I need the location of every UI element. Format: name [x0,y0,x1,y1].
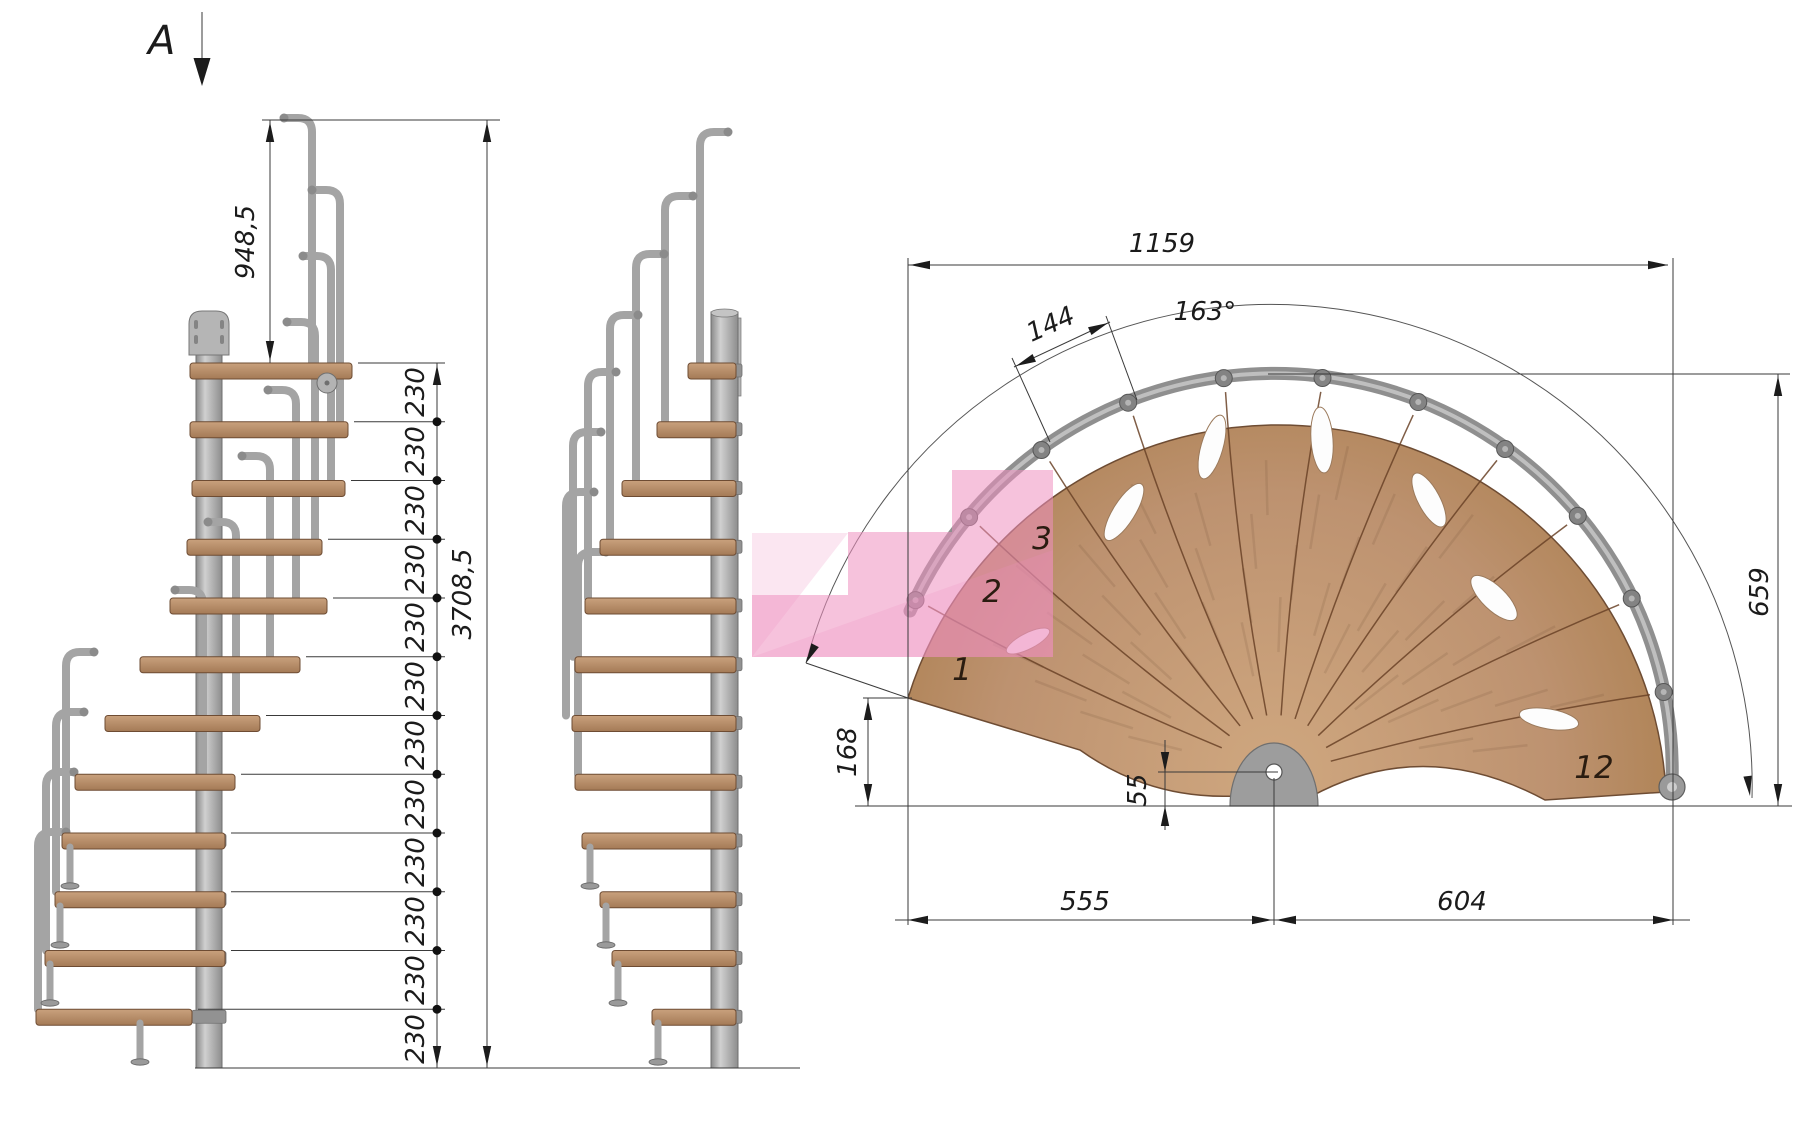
rail-joint-pin [1575,513,1581,519]
handrail-post [636,254,664,481]
dimension-node [433,770,442,779]
dimension-node [433,535,442,544]
auxiliary-elevation-view [566,128,742,1069]
dimension-arrow [483,1046,491,1066]
rail-joint-pin [1661,689,1667,695]
rail-clamp [90,648,99,657]
dimension-node [433,476,442,485]
dim-riser: 230 [401,426,431,476]
rail-clamp [724,128,733,137]
dim-riser: 230 [401,1014,431,1064]
dimension-arrow [864,784,872,804]
tread [582,833,736,849]
dim-right-half: 604 [1437,887,1487,917]
dimension-node [433,417,442,426]
tread [688,363,736,379]
foot-plate [61,883,79,889]
rail-joint-pin [1125,400,1131,406]
dim-riser: 230 [401,661,431,711]
tread [622,481,736,497]
dim-riser: 230 [401,602,431,652]
dimension-node [433,1005,442,1014]
rail-end-cap-core [1667,782,1677,792]
dimension-node [433,829,442,838]
tread [657,422,736,438]
tread [140,657,300,673]
rail-joint-pin [1502,446,1508,452]
tread [170,598,327,614]
rail-clamp [238,452,247,461]
highlight-step-1 [752,595,1053,657]
dimension-arrow [266,122,274,142]
tread [652,1009,736,1025]
dim-center-offset: 55 [1123,773,1153,806]
rail-clamp [280,114,289,123]
dimension-line [1012,358,1050,442]
dim-riser: 230 [401,896,431,946]
tread [36,1009,192,1025]
dimension-arrow [864,700,872,720]
tread [575,774,736,790]
dim-left-half: 555 [1060,887,1110,917]
handrail-post [665,196,693,422]
bracket-slot [194,320,198,329]
dimension-line [806,663,908,698]
highlight-step-2 [848,532,1053,595]
bracket-slot [220,335,224,344]
dimension-node [433,887,442,896]
rail-clamp [612,368,621,377]
bracket-slot [194,335,198,344]
tread [585,598,736,614]
rail-clamp [80,708,89,717]
dim-riser: 230 [401,367,431,417]
tread [187,539,322,555]
dimension-arrow [1276,916,1296,924]
section-label: A [145,18,175,64]
rail-clamp [264,386,273,395]
dimension-arrow [266,341,274,361]
rail-clamp [283,318,292,327]
tread [600,892,736,908]
tread [55,892,225,908]
dimension-node [433,652,442,661]
tread [612,951,736,967]
dim-riser: 230 [401,837,431,887]
dimension-arrow [1774,784,1782,804]
tread [45,951,225,967]
tread [192,481,345,497]
dim-riser: 230 [401,955,431,1005]
rail-clamp [634,311,643,320]
rail-clamp [171,586,180,595]
dimension-node [433,711,442,720]
dim-riser: 230 [401,720,431,770]
rail-joint-pin [1038,447,1044,453]
tread [62,833,225,849]
wood-grain [1266,460,1267,515]
dimension-arrow [1161,806,1169,826]
section-cut-highlight [752,470,1053,657]
dimension-arrow [910,261,930,269]
dim-total-height: 3708,5 [448,549,478,640]
rail-clamp [204,518,213,527]
foot-plate [609,1000,627,1006]
dim-entry-depth: 168 [833,727,863,777]
foot-plate [131,1059,149,1065]
foot-plate [649,1059,667,1065]
dimension-arrow [1648,261,1668,269]
tread [190,422,348,438]
dim-right-depth: 659 [1745,567,1775,617]
dimension-arrow [908,916,928,924]
dimension-arrow [433,1046,441,1066]
rail-clamp [597,428,606,437]
dim-overall-width: 1159 [1129,229,1195,259]
rail-joint-pin [1629,596,1635,602]
wall-bracket [189,311,229,355]
tread-number-12: 12 [1574,750,1613,786]
tread-number-1: 1 [952,652,972,688]
rail-joint-pin [1415,399,1421,405]
column-cap [711,309,738,317]
handrail-post [66,652,94,833]
bracket-slot [220,320,224,329]
rail-clamp [689,192,698,201]
staircase-technical-drawing: A 948,5 3708,5 230 230 230 230 230 230 2… [0,0,1800,1122]
dim-sweep-angle: 163° [1174,297,1237,327]
tread [75,774,235,790]
dim-riser: 230 [401,544,431,594]
tread [600,539,736,555]
rail-joint-pin [1221,375,1227,381]
dim-tread-width: 144 [1022,301,1080,349]
dimension-arrow [1653,916,1673,924]
dimension-arrow [194,58,211,86]
dimension-arrow [1252,916,1272,924]
tread-collar [192,1010,226,1023]
rail-clamp [299,252,308,261]
foot-plate [51,942,69,948]
tread [105,716,260,732]
rail-joint-pin [1320,375,1326,381]
side-elevation-view [36,114,352,1069]
dimension-node [433,946,442,955]
rail-clamp [308,186,317,195]
dimension-arrow [433,365,441,385]
dimension-arrow [1774,376,1782,396]
foot-plate [597,942,615,948]
dim-riser: 230 [401,485,431,535]
tread [575,657,736,673]
dim-top-riser: 948,5 [231,205,261,279]
dimension-node [433,594,442,603]
tread [572,716,736,732]
dimension-arrow [1088,319,1110,335]
rail-clamp [660,250,669,259]
rail-clamp [590,488,599,497]
foot-plate [41,1000,59,1006]
tread-number-2: 2 [982,574,1002,610]
wall-anchor-bolt [325,381,330,386]
dim-riser: 230 [401,779,431,829]
foot-plate [581,883,599,889]
tread-number-3: 3 [1032,521,1052,557]
dimension-arrow [483,122,491,142]
